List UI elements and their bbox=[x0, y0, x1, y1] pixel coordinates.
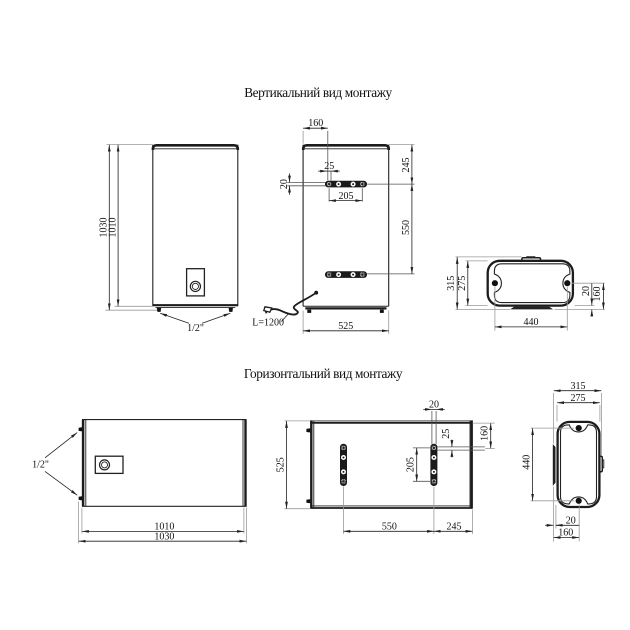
svg-text:275: 275 bbox=[571, 393, 586, 404]
svg-text:275: 275 bbox=[457, 276, 468, 291]
svg-text:160: 160 bbox=[558, 528, 573, 539]
svg-text:1010: 1010 bbox=[108, 218, 119, 238]
svg-text:550: 550 bbox=[401, 220, 412, 235]
svg-text:20: 20 bbox=[566, 515, 576, 526]
svg-text:245: 245 bbox=[447, 521, 462, 532]
svg-text:205: 205 bbox=[405, 457, 416, 472]
svg-text:25: 25 bbox=[324, 161, 334, 172]
svg-text:160: 160 bbox=[479, 426, 490, 441]
svg-text:L=1200: L=1200 bbox=[252, 317, 284, 328]
svg-text:20: 20 bbox=[581, 286, 592, 296]
svg-text:205: 205 bbox=[339, 191, 354, 202]
svg-text:245: 245 bbox=[401, 158, 412, 173]
svg-text:160: 160 bbox=[592, 287, 603, 302]
svg-text:525: 525 bbox=[338, 321, 353, 332]
svg-text:1/2": 1/2" bbox=[187, 323, 204, 334]
svg-text:315: 315 bbox=[446, 276, 457, 291]
svg-text:1/2": 1/2" bbox=[32, 459, 49, 470]
svg-text:1030: 1030 bbox=[154, 531, 174, 542]
svg-text:525: 525 bbox=[275, 457, 286, 472]
svg-text:550: 550 bbox=[382, 521, 397, 532]
svg-text:160: 160 bbox=[308, 118, 323, 129]
svg-text:Горизонтальний вид монтажу: Горизонтальний вид монтажу bbox=[244, 366, 403, 381]
svg-text:315: 315 bbox=[571, 381, 586, 392]
svg-text:25: 25 bbox=[441, 429, 452, 439]
svg-text:20: 20 bbox=[279, 179, 290, 189]
svg-text:440: 440 bbox=[521, 455, 532, 470]
svg-text:Вертикальний вид монтажу: Вертикальний вид монтажу bbox=[244, 85, 392, 100]
svg-text:440: 440 bbox=[524, 317, 539, 328]
svg-text:20: 20 bbox=[429, 400, 439, 411]
